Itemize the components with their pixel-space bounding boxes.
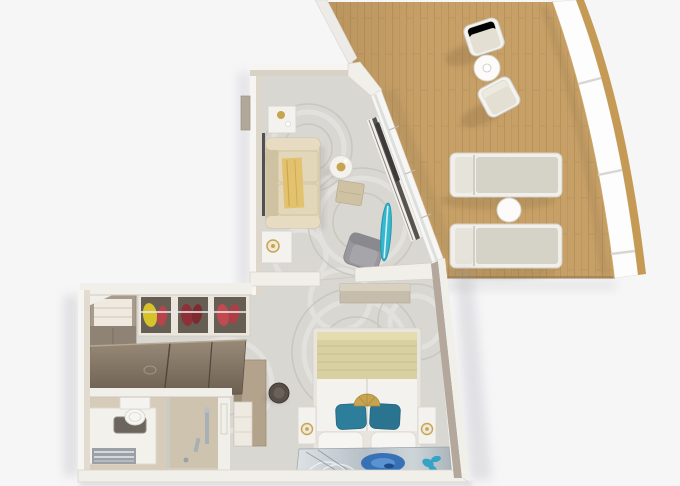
khaki-bed-runner [317,332,417,379]
bathroom-top-wall [84,388,232,397]
sun-lounger [450,153,562,197]
floor-plan-image [0,0,680,486]
nightstand-with-lamp [418,407,436,444]
nightstand-with-lamp [298,407,316,444]
entry-door [241,96,250,130]
dresser [340,284,410,303]
living-room-top-wall [250,64,350,76]
bathroom-door-wall [218,396,230,470]
floor-plan-svg [0,0,680,486]
gold-throw-blanket [282,158,305,209]
side-table-with-lamp [258,231,292,263]
vanity-counter [88,408,156,464]
ottoman [335,180,364,206]
sun-lounger [450,224,562,268]
living-bottom-wall-left [250,272,320,286]
walk-in-closet [88,293,250,398]
bathroom [84,388,232,470]
double-bed [308,328,426,465]
shadow-left [64,295,78,476]
corner-shelf-unit [90,295,136,350]
shadow-bottom [80,482,472,486]
living-room-left-wall [250,64,262,295]
lower-bottom-wall [78,470,468,482]
side-table-with-candle [268,106,296,133]
three-seat-sofa [266,138,325,230]
lower-left-wall [78,290,90,472]
wardrobe-bays [138,293,250,336]
towel-shelf [92,448,136,464]
